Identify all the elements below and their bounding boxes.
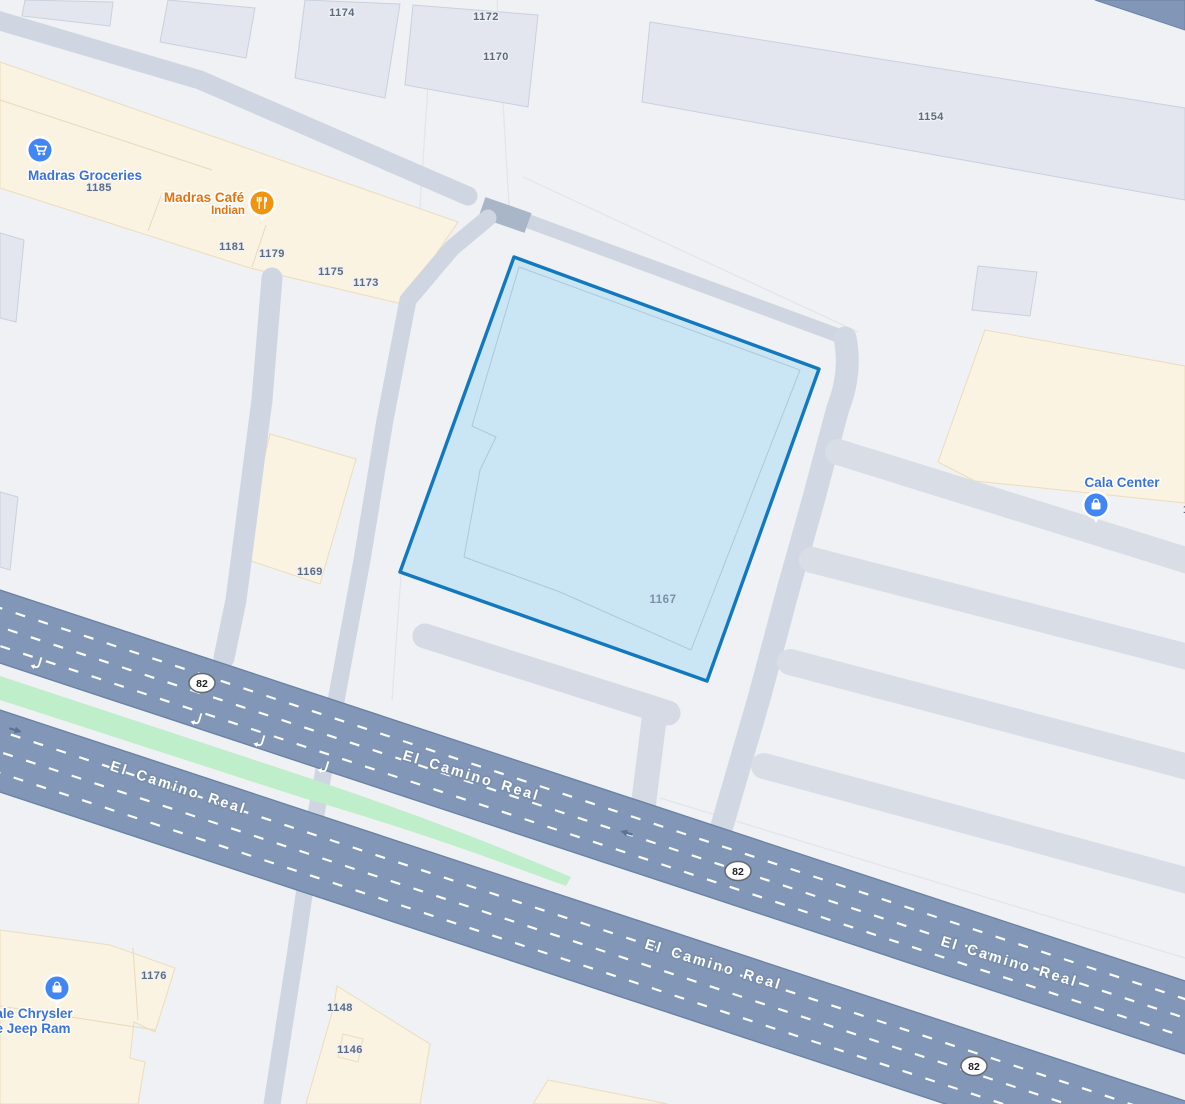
address-label: 1170 [483,51,509,63]
address-label: 1174 [329,7,355,19]
address-label: 1169 [297,566,323,578]
route-shield-82: 82 [968,1061,980,1073]
poi-label-madras-cafe[interactable]: Madras Café [164,190,245,205]
address-label-parcel: 1167 [650,594,677,606]
address-label: 1146 [337,1044,363,1056]
address-label: 1181 [219,241,245,253]
address-label: 1176 [141,970,167,982]
poi-label-cala-center[interactable]: Cala Center [1084,475,1160,490]
address-label: 1148 [327,1002,353,1014]
route-shield-82: 82 [732,866,744,878]
poi-label-madras-groceries[interactable]: Madras Groceries [28,168,142,183]
poi-label-chrysler-line2[interactable]: e Jeep Ram [0,1021,71,1036]
map-canvas[interactable]: 1174 1172 1170 1154 1185 1181 1179 1175 … [0,0,1185,1104]
route-shield-82: 82 [196,678,208,690]
building-small-east [972,266,1037,316]
poi-sublabel-madras-cafe: Indian [211,205,245,217]
driveway-to-highway [643,712,655,808]
address-label: 1175 [318,266,344,278]
address-label: 1185 [86,182,112,194]
address-label: 1154 [918,111,944,123]
address-label: 1172 [473,11,499,23]
poi-label-chrysler-line1[interactable]: ale Chrysler [0,1006,73,1021]
address-label: 1173 [353,277,379,289]
address-label: 1179 [259,248,285,260]
